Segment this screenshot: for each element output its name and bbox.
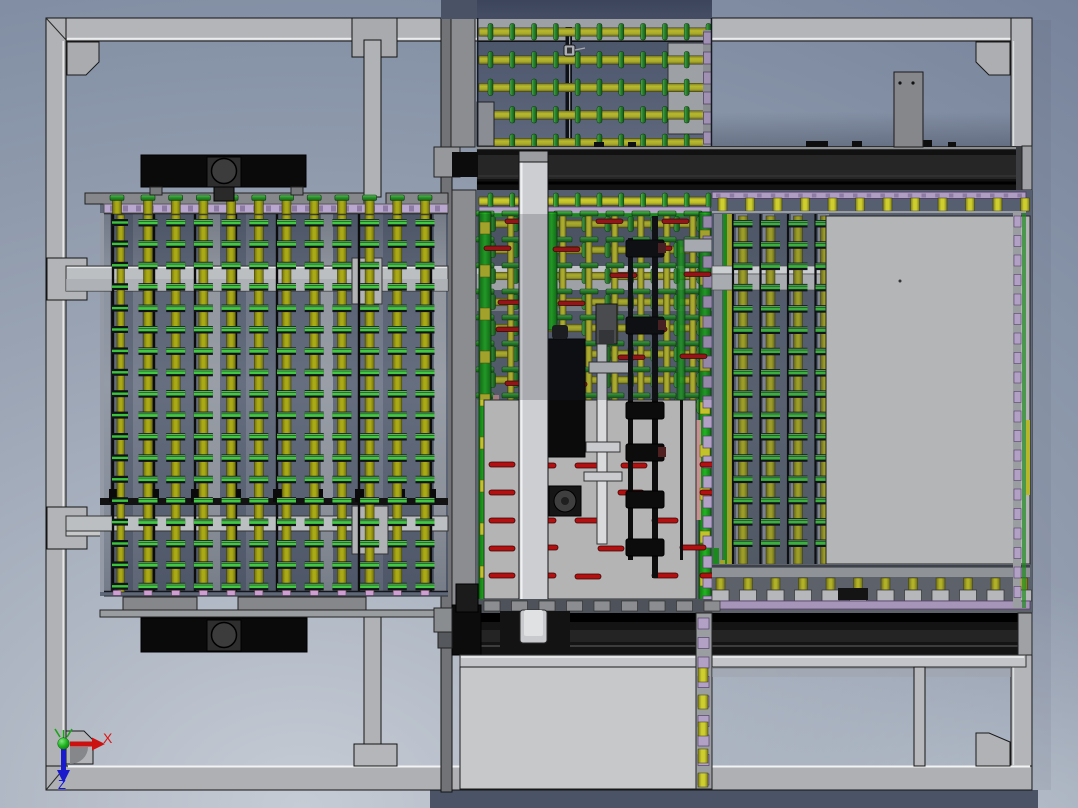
svg-text:X: X	[103, 730, 113, 746]
svg-text:Z: Z	[58, 777, 66, 792]
